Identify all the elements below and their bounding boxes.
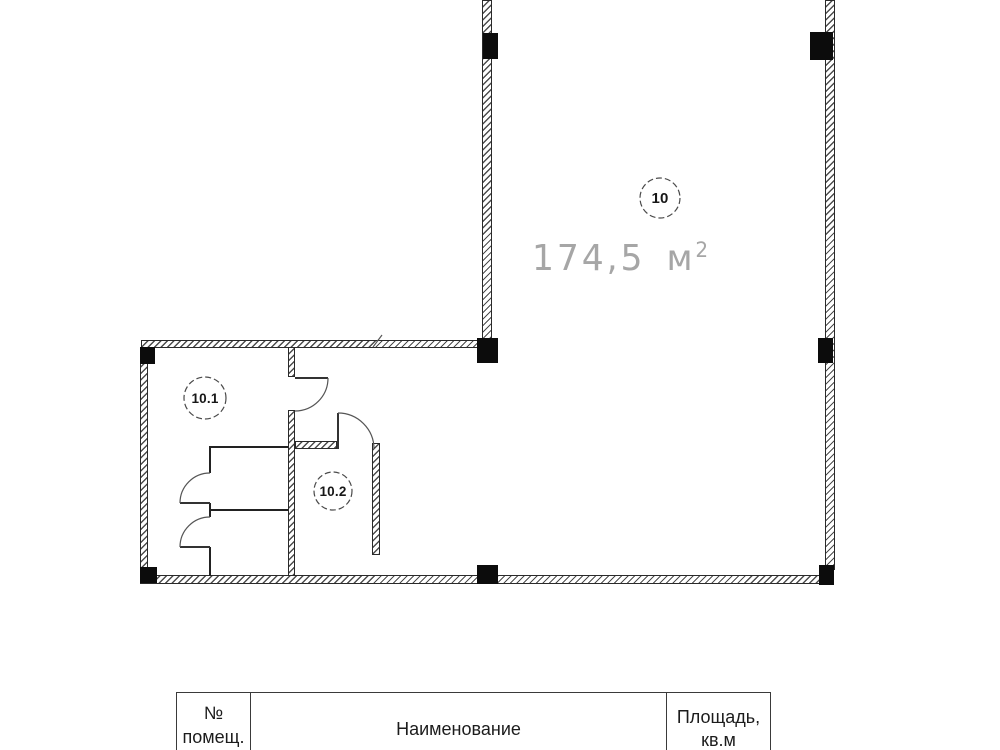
wall-partition-a-upper [288, 347, 295, 377]
column-top-left-wall [483, 33, 498, 59]
table-header-area-line2: кв.м [667, 730, 770, 750]
column-junction [477, 338, 498, 363]
column-left-bottom [140, 567, 157, 583]
door-arc [180, 517, 210, 547]
table-header-name: Наименование [251, 719, 666, 739]
wall-left [140, 347, 148, 578]
door-arc [295, 378, 328, 411]
door-arc [338, 413, 374, 449]
column-top-right-wall [810, 32, 833, 60]
wall-partition-c [372, 443, 380, 555]
table-header-number-line1: № [177, 703, 250, 723]
room-number-10-2: 10.2 [314, 472, 352, 510]
wall-stub-room102 [295, 441, 337, 449]
door-arc [180, 473, 210, 503]
column-bottom-right [819, 565, 834, 585]
room-number-10-text: 10 [651, 190, 668, 207]
room-number-10-2-text: 10.2 [319, 484, 346, 499]
table-header-number-line2: помещ. [177, 727, 250, 747]
table-header-area-line1: Площадь, [667, 707, 770, 727]
wall-right [825, 0, 835, 570]
room-number-10: 10 [640, 178, 680, 218]
room-number-10-1: 10.1 [184, 377, 226, 419]
table-border-top [176, 692, 771, 693]
column-bottom-mid [477, 565, 498, 584]
doors-and-fixtures-layer [0, 0, 1000, 750]
room-area-label: 174,5м2 [532, 238, 708, 279]
column-right-mid [818, 338, 833, 363]
wall-partition-a-lower [288, 410, 295, 576]
column-left-top [140, 347, 155, 364]
room-number-10-1-text: 10.1 [191, 391, 218, 406]
wall-top-left-section [141, 340, 483, 348]
floor-plan-canvas: 10 10.1 10.2 174,5м2 № помещ. Наименован… [0, 0, 1000, 750]
area-value: 174,5 [532, 238, 645, 279]
area-unit: м [666, 238, 695, 279]
table-border-right [770, 692, 771, 750]
area-exponent: 2 [695, 238, 708, 262]
